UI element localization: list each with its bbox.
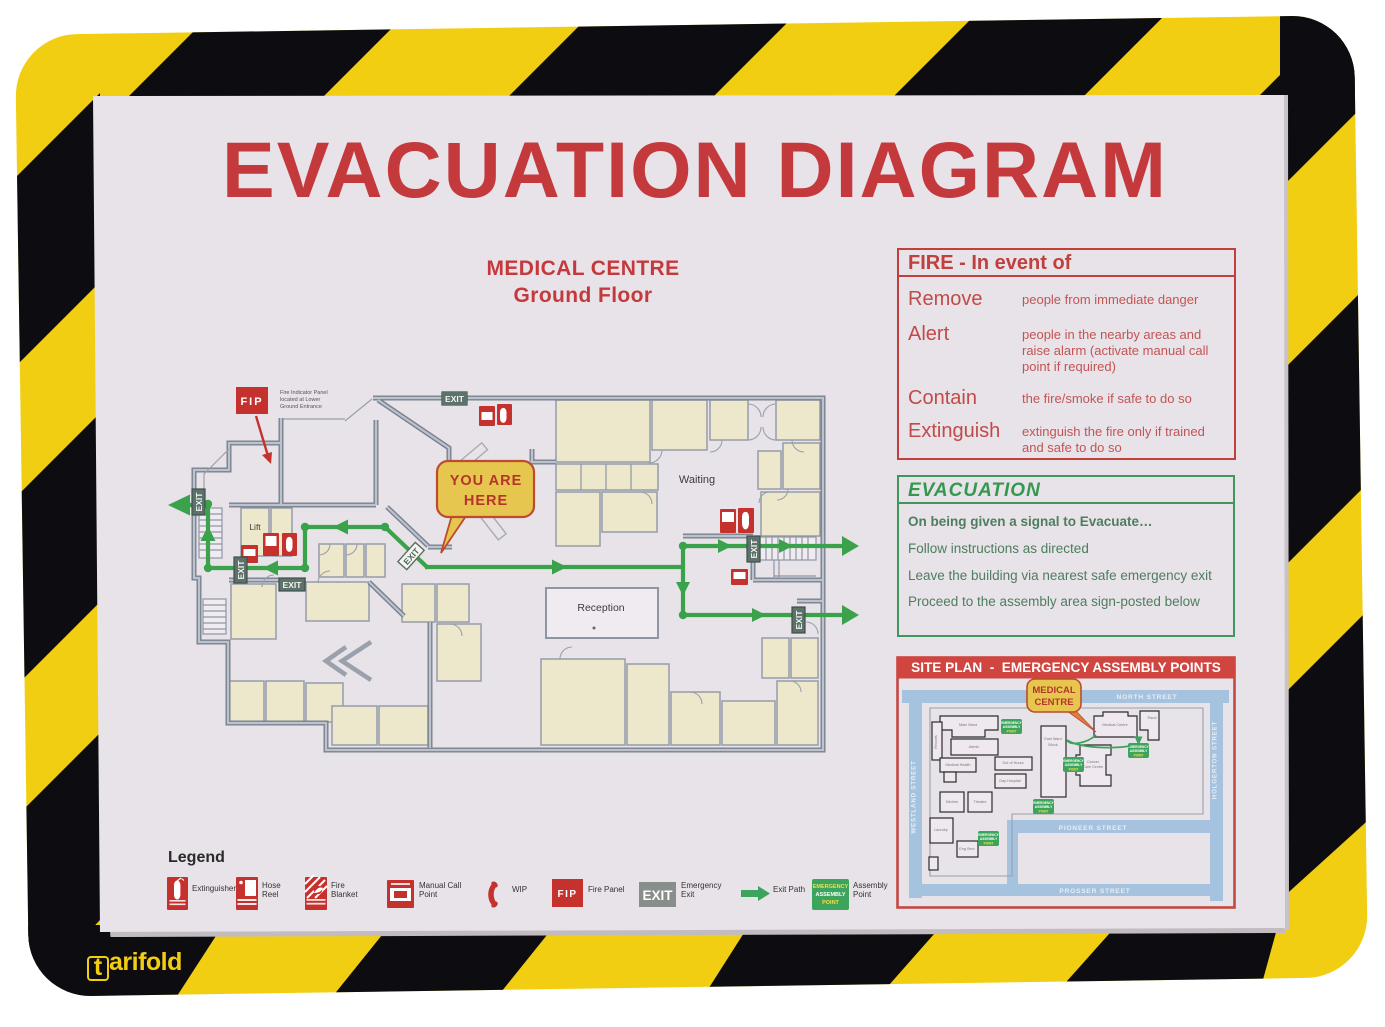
svg-text:EMERGENCY: EMERGENCY bbox=[1001, 721, 1022, 725]
svg-text:Ground Entrance: Ground Entrance bbox=[280, 404, 322, 410]
svg-text:EXIT: EXIT bbox=[642, 888, 673, 903]
svg-text:HERE: HERE bbox=[464, 493, 508, 509]
svg-text:WESTLAND STREET: WESTLAND STREET bbox=[911, 760, 918, 833]
svg-text:ASSEMBLY: ASSEMBLY bbox=[1130, 749, 1148, 753]
svg-text:Day Hospital: Day Hospital bbox=[999, 779, 1021, 783]
svg-text:Rand: Rand bbox=[1147, 716, 1156, 720]
svg-text:Block: Block bbox=[1048, 743, 1057, 747]
svg-text:FIP: FIP bbox=[557, 889, 577, 900]
svg-text:Laundry: Laundry bbox=[934, 828, 948, 832]
svg-text:Manual Call: Manual Call bbox=[419, 881, 461, 890]
svg-text:Admin: Admin bbox=[969, 745, 980, 749]
svg-text:ASSEMBLY: ASSEMBLY bbox=[1065, 763, 1083, 767]
svg-text:Cancer: Cancer bbox=[1087, 760, 1100, 764]
svg-text:Out of Hours: Out of Hours bbox=[1002, 761, 1023, 765]
svg-text:ASSEMBLY: ASSEMBLY bbox=[815, 892, 845, 898]
svg-text:EXIT: EXIT bbox=[283, 580, 303, 590]
svg-text:ASSEMBLY: ASSEMBLY bbox=[1035, 805, 1053, 809]
svg-text:PROSSER STREET: PROSSER STREET bbox=[1059, 888, 1130, 895]
svg-text:Records: Records bbox=[934, 735, 938, 749]
svg-text:Assembly: Assembly bbox=[853, 881, 888, 890]
svg-text:EMERGENCY: EMERGENCY bbox=[813, 884, 849, 890]
svg-text:EMERGENCY: EMERGENCY bbox=[1128, 745, 1149, 749]
svg-text:Fire Panel: Fire Panel bbox=[588, 885, 625, 894]
svg-text:FIP: FIP bbox=[240, 396, 263, 408]
svg-text:YOU ARE: YOU ARE bbox=[450, 473, 523, 489]
svg-text:Extinguisher: Extinguisher bbox=[192, 884, 236, 893]
svg-text:EXIT: EXIT bbox=[794, 610, 804, 630]
svg-text:Theatre: Theatre bbox=[974, 800, 987, 804]
svg-text:Emergency: Emergency bbox=[681, 881, 721, 890]
svg-text:Care Centre: Care Centre bbox=[1083, 765, 1104, 769]
svg-text:EMERGENCY: EMERGENCY bbox=[978, 833, 999, 837]
svg-text:located at Lower: located at Lower bbox=[280, 397, 321, 403]
svg-text:EMERGENCY: EMERGENCY bbox=[1033, 801, 1054, 805]
svg-text:ASSEMBLY: ASSEMBLY bbox=[980, 837, 998, 841]
svg-text:Eng Serv: Eng Serv bbox=[959, 847, 975, 851]
svg-text:PIONEER STREET: PIONEER STREET bbox=[1059, 825, 1128, 832]
svg-text:ASSEMBLY: ASSEMBLY bbox=[1003, 725, 1021, 729]
svg-text:Medical Health: Medical Health bbox=[946, 763, 971, 767]
svg-text:Blanket: Blanket bbox=[331, 890, 358, 899]
svg-text:HOLGERTON STREET: HOLGERTON STREET bbox=[1212, 721, 1219, 799]
svg-text:NORTH STREET: NORTH STREET bbox=[1117, 694, 1178, 701]
svg-text:Point: Point bbox=[419, 890, 438, 899]
svg-text:CENTRE: CENTRE bbox=[1034, 697, 1073, 708]
svg-text:Hose: Hose bbox=[262, 881, 281, 890]
svg-text:POINT: POINT bbox=[1039, 809, 1049, 813]
svg-text:Reel: Reel bbox=[262, 890, 279, 899]
svg-text:Medical Centre: Medical Centre bbox=[1102, 723, 1127, 727]
svg-text:POINT: POINT bbox=[984, 841, 994, 845]
svg-text:EMERGENCY: EMERGENCY bbox=[1063, 759, 1084, 763]
svg-text:Waiting: Waiting bbox=[679, 474, 715, 486]
svg-text:WIP: WIP bbox=[512, 885, 527, 894]
svg-text:Fire: Fire bbox=[331, 881, 345, 890]
svg-text:MEDICAL: MEDICAL bbox=[1032, 685, 1075, 696]
svg-text:Exit: Exit bbox=[681, 890, 695, 899]
svg-text:Point: Point bbox=[853, 890, 872, 899]
svg-text:Exit Path: Exit Path bbox=[773, 885, 805, 894]
svg-text:POINT: POINT bbox=[1069, 767, 1079, 771]
svg-text:SITE PLAN - EMERGENCY ASSEMB: SITE PLAN - EMERGENCY ASSEMBLY POINTS bbox=[911, 660, 1221, 675]
svg-text:East Ward: East Ward bbox=[1044, 737, 1061, 741]
svg-text:POINT: POINT bbox=[1134, 753, 1144, 757]
svg-text:EXIT: EXIT bbox=[236, 560, 246, 580]
svg-text:POINT: POINT bbox=[1007, 729, 1017, 733]
svg-text:Reception: Reception bbox=[577, 602, 624, 614]
svg-text:EXIT: EXIT bbox=[445, 394, 465, 404]
svg-text:EXIT: EXIT bbox=[194, 492, 204, 512]
svg-text:Fire Indicator Panel: Fire Indicator Panel bbox=[280, 390, 328, 396]
svg-text:Kitchen: Kitchen bbox=[946, 800, 959, 804]
svg-text:Lift: Lift bbox=[249, 522, 261, 532]
svg-text:POINT: POINT bbox=[822, 900, 839, 906]
svg-text:EXIT: EXIT bbox=[749, 539, 759, 559]
svg-text:Main Ward: Main Ward bbox=[959, 723, 977, 727]
